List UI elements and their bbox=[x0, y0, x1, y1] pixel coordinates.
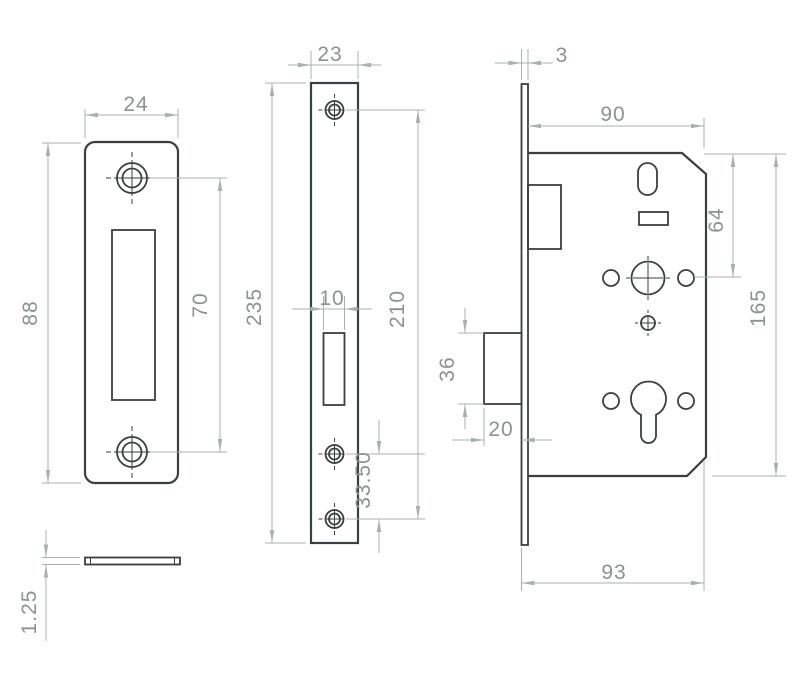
dim-label-strike-height: 88 bbox=[19, 300, 42, 325]
dim-label-overall-depth: 93 bbox=[601, 561, 626, 584]
dim-label-top-to-spindle: 64 bbox=[705, 207, 728, 232]
dim-label-strike-thickness: 1.25 bbox=[18, 590, 41, 635]
dim-label-deadbolt-throw: 20 bbox=[488, 418, 513, 441]
dim-label-faceplate-bottom-hole-spacing: 33.50 bbox=[352, 451, 375, 509]
dim-label-faceplate-height: 235 bbox=[243, 288, 266, 326]
dim-label-faceplate-slot-width: 10 bbox=[319, 287, 344, 310]
dim-label-case-depth: 90 bbox=[600, 103, 625, 126]
dim-label-strike-hole-spacing: 70 bbox=[189, 292, 212, 317]
dim-label-faceplate-hole-spacing: 210 bbox=[386, 290, 409, 328]
dim-label-strike-width: 24 bbox=[123, 93, 148, 116]
technical-drawing-canvas: 24 88 70 1.25 bbox=[0, 0, 800, 676]
dim-label-case-height: 165 bbox=[747, 289, 770, 327]
paper-background bbox=[0, 0, 800, 676]
drawing-page: 24 88 70 1.25 bbox=[0, 0, 800, 676]
dim-label-forend-thickness: 3 bbox=[556, 44, 569, 67]
dim-label-deadbolt-height: 36 bbox=[436, 356, 459, 381]
dim-label-faceplate-width: 23 bbox=[317, 43, 342, 66]
